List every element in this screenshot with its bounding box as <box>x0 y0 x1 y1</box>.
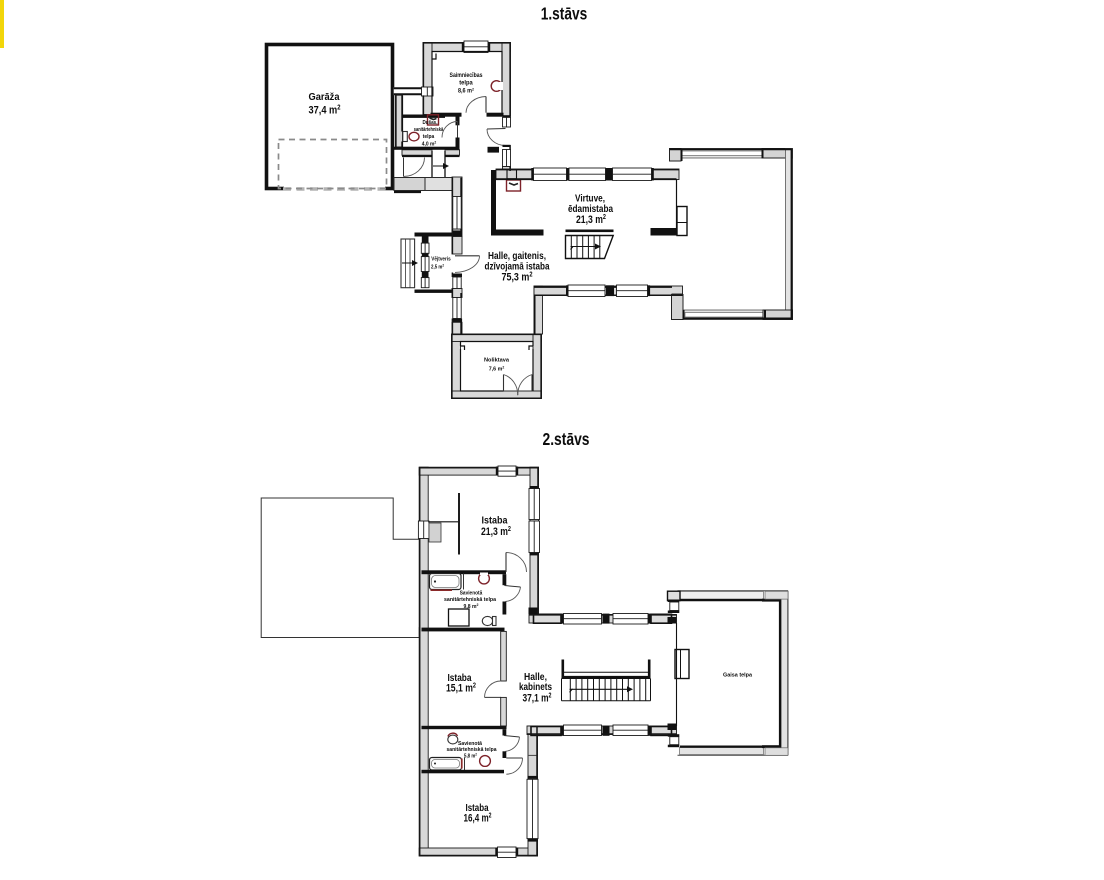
svg-text:4,0 m2: 4,0 m2 <box>422 141 437 148</box>
svg-text:sanitārtehniskā telpa: sanitārtehniskā telpa <box>447 747 497 753</box>
svg-text:sanitārtehniskā telpa: sanitārtehniskā telpa <box>444 597 496 603</box>
svg-text:16,4 m2: 16,4 m2 <box>464 813 492 825</box>
svg-text:21,3 m2: 21,3 m2 <box>576 214 606 226</box>
svg-text:Halle, gaitenis,: Halle, gaitenis, <box>488 251 546 262</box>
svg-text:15,1 m2: 15,1 m2 <box>446 683 476 695</box>
svg-text:Istaba: Istaba <box>482 516 508 527</box>
svg-text:telpa: telpa <box>423 134 435 140</box>
svg-text:37,1 m2: 37,1 m2 <box>523 693 552 705</box>
svg-text:Virtuve,: Virtuve, <box>575 194 605 205</box>
svg-text:5,8 m2: 5,8 m2 <box>464 753 477 760</box>
svg-text:2.stāvs: 2.stāvs <box>543 429 590 449</box>
svg-text:sanitārtehniskā: sanitārtehniskā <box>414 127 444 133</box>
svg-text:Gaisa telpa: Gaisa telpa <box>723 673 753 679</box>
svg-text:Dušas,: Dušas, <box>423 120 438 126</box>
svg-text:37,4 m2: 37,4 m2 <box>309 105 341 117</box>
svg-text:Noliktava: Noliktava <box>484 358 510 364</box>
svg-text:75,3 m2: 75,3 m2 <box>502 272 533 284</box>
svg-text:2,5 m2: 2,5 m2 <box>431 264 444 271</box>
svg-text:Savienotā: Savienotā <box>460 591 483 597</box>
svg-text:7,6 m2: 7,6 m2 <box>489 366 505 373</box>
svg-text:1.stāvs: 1.stāvs <box>541 4 588 24</box>
svg-text:kabinets: kabinets <box>519 682 552 693</box>
svg-text:21,3 m2: 21,3 m2 <box>481 526 511 538</box>
svg-text:Saimniecības: Saimniecības <box>450 73 484 79</box>
svg-text:Garāža: Garāža <box>309 91 340 103</box>
svg-text:Vējtveris: Vējtveris <box>431 257 451 263</box>
